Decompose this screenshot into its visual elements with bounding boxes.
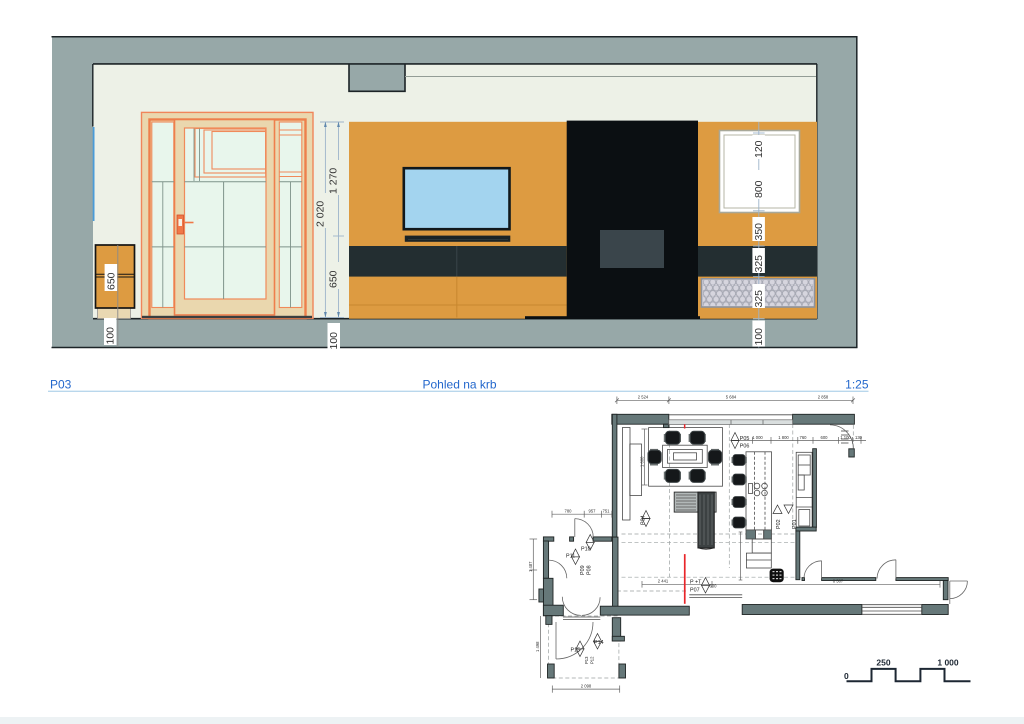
svg-text:1 600: 1 600 bbox=[639, 456, 644, 467]
svg-text:957: 957 bbox=[589, 509, 597, 514]
svg-text:P02: P02 bbox=[776, 519, 782, 529]
svg-text:P08: P08 bbox=[587, 565, 593, 575]
svg-text:0: 0 bbox=[844, 671, 849, 681]
svg-text:P09: P09 bbox=[580, 565, 586, 575]
svg-text:650: 650 bbox=[328, 270, 340, 288]
svg-text:1 487: 1 487 bbox=[528, 561, 533, 572]
svg-text:250: 250 bbox=[876, 658, 890, 668]
svg-text:5 684: 5 684 bbox=[726, 395, 737, 400]
svg-text:P06: P06 bbox=[740, 443, 750, 449]
svg-text:8 307: 8 307 bbox=[833, 579, 844, 584]
svg-text:2 020: 2 020 bbox=[315, 201, 327, 227]
svg-text:650: 650 bbox=[105, 272, 117, 290]
svg-text:100: 100 bbox=[105, 327, 117, 345]
svg-text:1 100: 1 100 bbox=[840, 435, 851, 440]
svg-text:600: 600 bbox=[821, 435, 829, 440]
svg-text:350: 350 bbox=[753, 223, 765, 241]
svg-text:600: 600 bbox=[710, 584, 718, 589]
svg-text:1 498: 1 498 bbox=[535, 641, 540, 652]
svg-text:2 524: 2 524 bbox=[638, 395, 649, 400]
svg-text:2 098: 2 098 bbox=[581, 684, 592, 689]
svg-text:1 270: 1 270 bbox=[328, 168, 340, 194]
svg-text:1 800: 1 800 bbox=[778, 435, 789, 440]
svg-text:760: 760 bbox=[800, 435, 808, 440]
svg-text:120: 120 bbox=[753, 140, 765, 158]
svg-text:Pohled na krb: Pohled na krb bbox=[423, 378, 497, 392]
svg-text:130: 130 bbox=[855, 435, 863, 440]
svg-text:1:25: 1:25 bbox=[845, 378, 869, 392]
svg-text:1 000: 1 000 bbox=[937, 658, 959, 668]
svg-text:P12: P12 bbox=[590, 656, 595, 664]
svg-text:P03: P03 bbox=[50, 378, 72, 392]
svg-text:780: 780 bbox=[565, 509, 573, 514]
svg-text:P05: P05 bbox=[740, 436, 750, 442]
svg-text:P13: P13 bbox=[584, 656, 589, 664]
svg-text:2 858: 2 858 bbox=[818, 395, 829, 400]
svg-text:P04: P04 bbox=[641, 515, 647, 525]
svg-text:100: 100 bbox=[753, 328, 765, 346]
svg-text:800: 800 bbox=[753, 180, 765, 198]
svg-text:P01: P01 bbox=[792, 519, 798, 529]
svg-text:1 000: 1 000 bbox=[752, 435, 763, 440]
svg-text:P +T: P +T bbox=[690, 580, 702, 586]
svg-text:325: 325 bbox=[753, 290, 765, 308]
svg-text:325: 325 bbox=[753, 255, 765, 273]
svg-text:P15: P15 bbox=[571, 648, 581, 654]
svg-text:100: 100 bbox=[328, 332, 340, 350]
svg-text:P07: P07 bbox=[690, 588, 700, 594]
svg-text:751: 751 bbox=[603, 509, 611, 514]
svg-text:2 441: 2 441 bbox=[658, 579, 669, 584]
